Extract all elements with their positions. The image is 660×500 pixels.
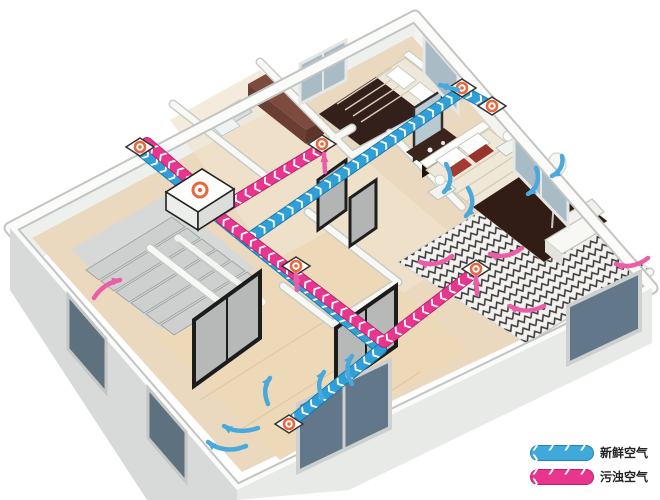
ventilation-diagram: ❯❯❯❯❯❯❯❯❯❯❯❯❯❯❯❯❯❯❯❯❯❯❯❯❯❯❯❯❯❯❯❯❯❯❯❯❯❯❯❯… <box>0 0 660 500</box>
legend-item-polluted-air: ❯ ❯ ❯ ❯ ❯ 污浊空气 <box>530 468 648 485</box>
exhaust-up-arrow <box>324 154 325 172</box>
legend: ❯ ❯ ❯ ❯ ❯ 新鲜空气 ❯ ❯ ❯ ❯ ❯ 污浊空气 <box>530 444 648 485</box>
polluted-air-duct-icon: ❯ ❯ ❯ ❯ ❯ <box>530 469 594 485</box>
fresh-air-duct-icon: ❯ ❯ ❯ ❯ ❯ <box>530 445 594 461</box>
exhaust-up-arrow <box>296 274 297 290</box>
svg-text:❯❯❯❯❯❯❯❯❯❯❯❯❯❯❯❯❯❯❯❯❯❯❯❯❯❯❯❯❯❯: ❯❯❯❯❯❯❯❯❯❯❯❯❯❯❯❯❯❯❯❯❯❯❯❯❯❯❯❯❯❯❯❯❯❯❯❯❯❯❯❯ <box>0 0 204 193</box>
legend-item-fresh-air: ❯ ❯ ❯ ❯ ❯ 新鲜空气 <box>530 444 648 461</box>
legend-label-fresh-air: 新鲜空气 <box>600 444 648 461</box>
exhaust-up-arrow <box>476 277 477 294</box>
legend-label-polluted-air: 污浊空气 <box>600 468 648 485</box>
exhaust-duct-outlet: ❯❯❯❯❯❯❯❯❯❯❯❯❯❯❯❯❯❯❯❯❯❯❯❯❯❯❯❯❯❯❯❯❯❯❯❯❯❯❯❯ <box>0 0 204 193</box>
table-lamp <box>435 175 445 185</box>
isometric-house-scene: ❯❯❯❯❯❯❯❯❯❯❯❯❯❯❯❯❯❯❯❯❯❯❯❯❯❯❯❯❯❯❯❯❯❯❯❯❯❯❯❯… <box>0 0 660 500</box>
